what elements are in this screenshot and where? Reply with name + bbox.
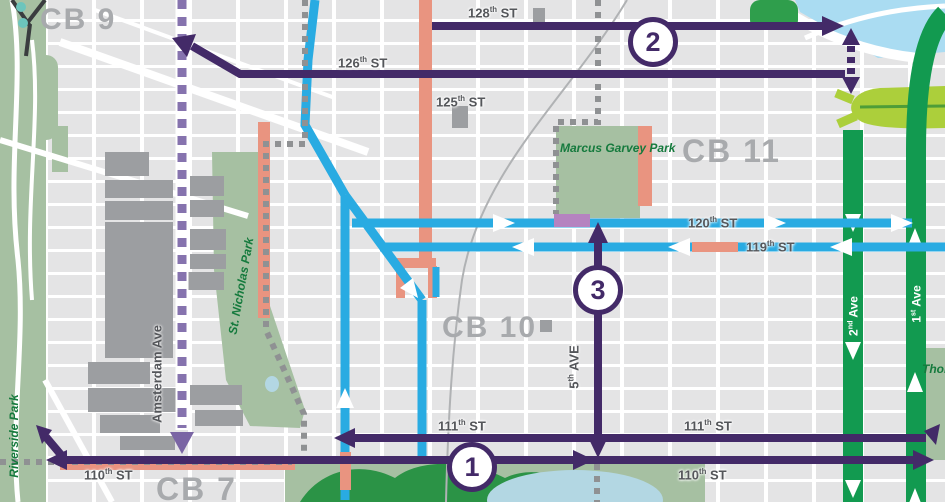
route-marker-3: 3 <box>573 265 623 315</box>
route-2-126th <box>192 46 845 74</box>
magenta-segment <box>554 214 590 227</box>
park-label-marcus-garvey: Marcus Garvey Park <box>560 142 632 156</box>
ave-label-2nd: 2nd Ave <box>846 296 861 336</box>
street-label-119th: 119th ST <box>746 239 795 254</box>
street-label-128th: 128th ST <box>468 5 517 20</box>
marcus-garvey-park-area <box>556 126 640 218</box>
street-label-110th-west: 110th ST <box>84 467 133 482</box>
street-label-111th-east: 111th ST <box>684 418 732 433</box>
route-1-branch <box>46 437 62 456</box>
ave-label-5th: 5th AVE <box>566 345 581 389</box>
salmon-madison-edge <box>638 126 652 206</box>
street-label-126th: 126th ST <box>338 55 387 70</box>
salmon-on-119th <box>692 242 738 252</box>
street-label-125th: 125th ST <box>436 94 485 109</box>
park-pond <box>265 376 279 392</box>
riverside-park-lobe <box>0 55 58 140</box>
park-label-riverside: Riverside Park <box>7 394 21 477</box>
small-park-block <box>52 126 68 172</box>
viaduct-dot <box>16 2 26 12</box>
viaduct-dot <box>18 18 28 28</box>
route-marker-2: 2 <box>628 17 678 67</box>
st-nicholas-ave-route <box>305 0 345 195</box>
cb9-label: CB 9 <box>40 3 116 37</box>
bike-route-planning-map: CB 9 CB 11 CB 10 CB 7 128th ST 126th ST … <box>0 0 945 502</box>
cb11-label: CB 11 <box>682 133 781 170</box>
street-label-111th-west: 111th ST <box>438 418 486 433</box>
street-label-110th-east: 110th ST <box>678 467 727 482</box>
park-label-thomas-jefferson: Thomas Jefferson Park <box>922 362 945 376</box>
route-marker-1: 1 <box>447 442 497 492</box>
cb7-label: CB 7 <box>156 471 237 502</box>
cb10-label: CB 10 <box>442 311 537 345</box>
street-label-120th: 120th ST <box>688 215 737 230</box>
ave-label-1st: 1st Ave <box>909 285 924 323</box>
ave-label-amsterdam: Amsterdam Ave <box>150 325 165 423</box>
